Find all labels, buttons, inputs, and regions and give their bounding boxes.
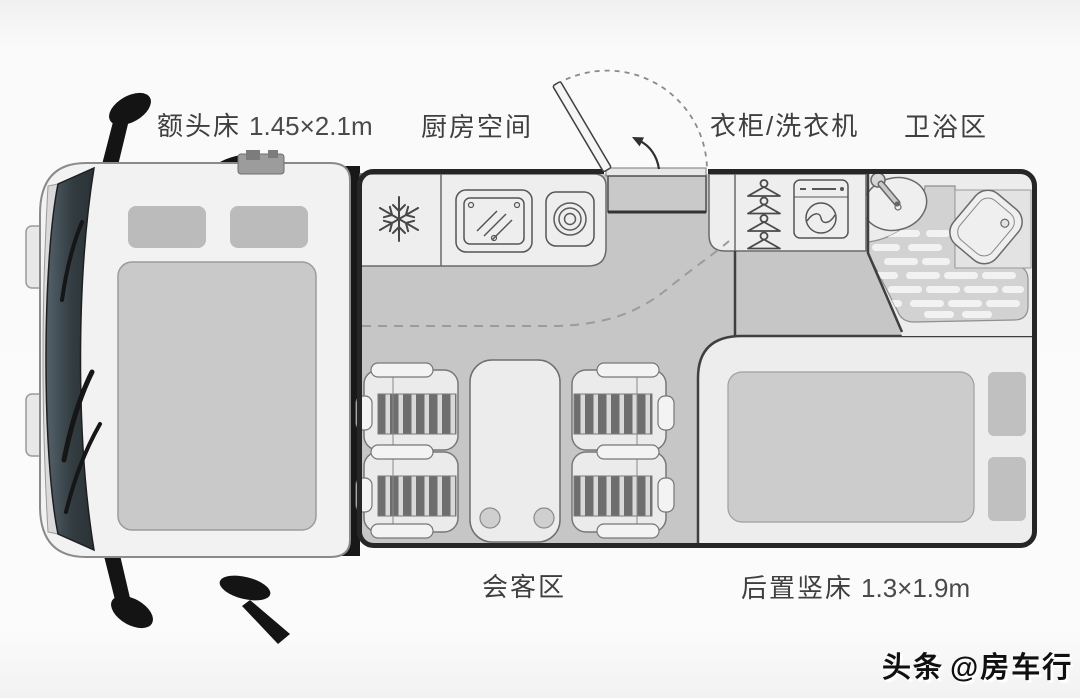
lounge-seat [356,363,458,538]
watermark: 头条@房车行 [882,644,1073,686]
rv-floorplan-canvas: 额头床1.45×2.1m 厨房空间 衣柜/洗衣机 卫浴区 会客区 后置竖床1.3… [0,0,1080,698]
overhead-bed-mattress [118,262,316,530]
truck-cab [26,86,360,644]
burner-rings-icon [546,192,594,246]
pillow [988,372,1026,436]
covered-sink-icon [456,190,532,252]
door-leaf [553,81,612,172]
door-threshold [606,168,706,176]
watermark-handle: @房车行 [950,652,1073,684]
roof-vent [238,150,284,174]
label-overhead-bed-name: 额头床 [157,111,241,141]
kitchen-area [360,174,606,266]
label-bathroom-name: 卫浴区 [904,112,988,142]
washing-machine-icon [794,180,848,238]
label-rear-bed-size: 1.3×1.9m [861,573,970,603]
pillow [230,206,308,248]
label-rear-bed-name: 后置竖床 [741,573,853,603]
dining-table [470,360,560,542]
label-rear-bed: 后置竖床1.3×1.9m [741,568,970,605]
rear-bed-mattress [728,372,974,522]
wardrobe-area [709,174,866,251]
label-lounge-name: 会客区 [482,572,566,602]
label-kitchen: 厨房空间 [421,107,533,144]
entry-step [608,176,706,212]
watermark-source: 头条 [882,652,944,684]
label-overhead-bed: 额头床1.45×2.1m [157,106,373,143]
pillow [988,457,1026,521]
label-overhead-bed-size: 1.45×2.1m [249,111,373,141]
label-wardrobe-washer: 衣柜/洗衣机 [710,106,859,143]
label-bathroom: 卫浴区 [904,107,988,144]
label-lounge: 会客区 [482,567,566,604]
lounge-area [356,360,674,542]
pillow [128,206,206,248]
label-wardrobe-washer-name: 衣柜/洗衣机 [710,111,859,141]
label-kitchen-name: 厨房空间 [421,112,533,142]
lounge-seat [572,363,674,538]
